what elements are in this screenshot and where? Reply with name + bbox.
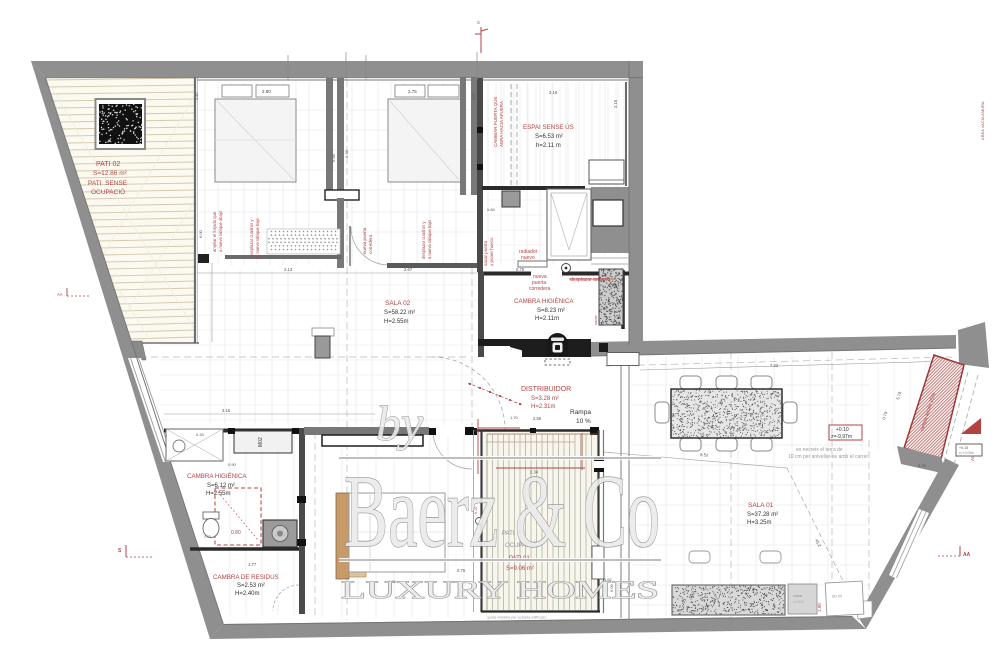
svg-text:1.70: 1.70 — [510, 415, 519, 420]
svg-text:corredera: corredera — [529, 286, 551, 292]
svg-text:0.84: 0.84 — [487, 207, 496, 212]
svg-text:1.90: 1.90 — [817, 603, 822, 612]
svg-text:AREA VACIA AMURA: AREA VACIA AMURA — [980, 101, 985, 140]
svg-text:CAMBIAR PUERTA QUE: CAMBIAR PUERTA QUE — [493, 97, 498, 147]
svg-text:AA: AA — [57, 292, 63, 297]
svg-text:sacar: sacar — [593, 315, 598, 325]
svg-text:6.98: 6.98 — [331, 153, 336, 162]
svg-text:M02: M02 — [258, 437, 264, 447]
svg-text:AA: AA — [963, 552, 971, 558]
svg-text:h=2.11 m: h=2.11 m — [536, 143, 561, 149]
svg-text:0.80: 0.80 — [231, 530, 241, 536]
svg-text:0.90: 0.90 — [228, 462, 237, 467]
svg-text:LUXURY HOMES: LUXURY HOMES — [341, 577, 659, 604]
svg-text:PATI SENSE: PATI SENSE — [88, 180, 128, 187]
svg-text:0.30: 0.30 — [195, 93, 199, 100]
svg-text:ESPAI SENSE ÚS: ESPAI SENSE ÚS — [523, 124, 574, 131]
svg-text:3.16: 3.16 — [222, 408, 231, 413]
svg-text:Baerz & Co: Baerz & Co — [344, 454, 660, 569]
svg-text:2.80: 2.80 — [262, 89, 271, 94]
svg-text:H=2.31m: H=2.31m — [531, 404, 556, 410]
svg-text:0.97: 0.97 — [472, 93, 476, 100]
svg-text:2.13: 2.13 — [284, 267, 293, 272]
svg-text:cuina: cuina — [793, 594, 802, 598]
svg-text:SD 04: SD 04 — [832, 594, 842, 599]
svg-text:a nuevo tabique abajo: a nuevo tabique abajo — [218, 210, 223, 252]
svg-text:S=58.22 m²: S=58.22 m² — [384, 310, 415, 316]
svg-text:S=3.28 m²: S=3.28 m² — [531, 396, 559, 402]
svg-text:3.16: 3.16 — [549, 90, 558, 95]
svg-text:s.1900: s.1900 — [793, 600, 804, 604]
svg-text:+0.15: +0.15 — [959, 446, 968, 450]
svg-text:7.22: 7.22 — [770, 363, 779, 368]
svg-text:H=2.11m: H=2.11m — [535, 316, 559, 322]
svg-text:S=6.53 m²: S=6.53 m² — [535, 134, 563, 140]
svg-text:CAMBRA DE RESIDUS: CAMBRA DE RESIDUS — [213, 574, 279, 581]
svg-text:z=-9,97m: z=-9,97m — [831, 434, 852, 440]
svg-text:S=8.23 m²: S=8.23 m² — [537, 308, 565, 314]
svg-text:Rampa: Rampa — [570, 409, 591, 416]
svg-text:ABRA HACIA AFUERA: ABRA HACIA AFUERA — [499, 101, 504, 147]
svg-text:nueva puerta: nueva puerta — [362, 227, 367, 254]
svg-text:H=3.25m: H=3.25m — [747, 520, 772, 526]
svg-text:5.78: 5.78 — [918, 463, 927, 468]
svg-text:S: S — [477, 20, 480, 25]
svg-text:SALA 01: SALA 01 — [748, 502, 774, 509]
svg-text:1.77: 1.77 — [248, 562, 257, 567]
svg-text:CAMBRA HIGIÈNICA: CAMBRA HIGIÈNICA — [514, 298, 574, 305]
svg-text:2.15: 2.15 — [613, 99, 618, 108]
svg-text:0.33: 0.33 — [196, 432, 205, 437]
svg-text:DISTRIBUIDOR: DISTRIBUIDOR — [521, 386, 571, 393]
svg-text:y poner hueco: y poner hueco — [489, 237, 494, 266]
svg-text:PATI 02: PATI 02 — [96, 161, 120, 168]
svg-text:+0.10: +0.10 — [836, 427, 849, 433]
svg-text:ampliar el forjado que: ampliar el forjado que — [212, 211, 217, 252]
svg-text:H=2.40m: H=2.40m — [235, 591, 260, 597]
svg-text:desplazar armario: desplazar armario — [570, 277, 610, 283]
svg-text:nuevo: nuevo — [521, 255, 535, 261]
svg-text:S=2.53 m²: S=2.53 m² — [237, 583, 265, 589]
svg-text:6.00: 6.00 — [198, 229, 203, 238]
svg-text:S=12.86 m²: S=12.86 m² — [93, 170, 128, 177]
svg-text:10 cm per anivellar-se amb el: 10 cm per anivellar-se amb el carrer — [788, 454, 868, 460]
svg-text:SALA 02: SALA 02 — [385, 300, 411, 307]
svg-text:CAMBRA HIGIÉNICA: CAMBRA HIGIÉNICA — [187, 473, 247, 480]
svg-text:2.75: 2.75 — [408, 89, 417, 94]
svg-text:desplazar cuadros y: desplazar cuadros y — [249, 219, 254, 257]
svg-text:3.98: 3.98 — [344, 149, 349, 158]
svg-text:desplazar cuadros y: desplazar cuadros y — [421, 221, 426, 259]
svg-text:sacar puerta: sacar puerta — [483, 240, 488, 266]
svg-text:OCUPACIÓ: OCUPACIÓ — [91, 187, 125, 196]
svg-text:0.75: 0.75 — [516, 267, 525, 272]
svg-text:by: by — [376, 395, 424, 451]
svg-text:a nuevo tabique bajo: a nuevo tabique bajo — [427, 219, 432, 259]
svg-text:es necreix el terra de: es necreix el terra de — [796, 447, 843, 453]
svg-text:8.52: 8.52 — [700, 452, 709, 458]
svg-text:2.67: 2.67 — [404, 267, 413, 272]
svg-text:a nuevo tabique bajo: a nuevo tabique bajo — [255, 217, 260, 257]
svg-text:S=37.28 m²: S=37.28 m² — [747, 512, 778, 518]
svg-text:corredera: corredera — [368, 234, 373, 254]
svg-text:H=2.55m: H=2.55m — [384, 319, 409, 325]
svg-text:0.33: 0.33 — [204, 535, 211, 539]
svg-text:z=+0.00m: z=+0.00m — [959, 451, 974, 455]
svg-text:1.19: 1.19 — [477, 228, 482, 237]
svg-text:quota metalica per a planta ed: quota metalica per a planta edificacio — [487, 616, 546, 620]
svg-text:2.55: 2.55 — [533, 416, 542, 421]
svg-text:10 %: 10 % — [576, 418, 591, 425]
